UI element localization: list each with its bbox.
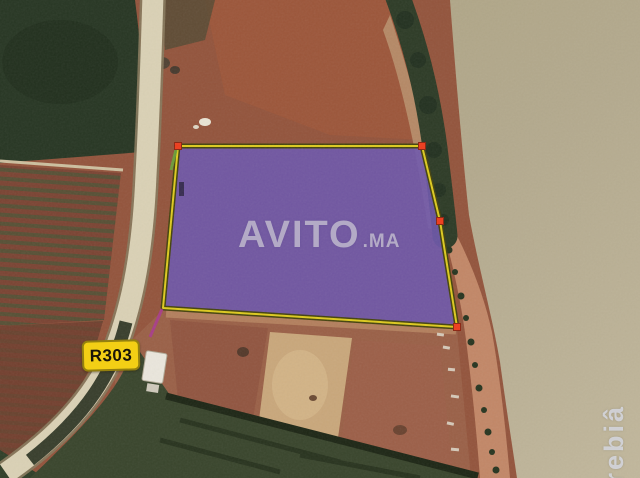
satellite-listing-image: AVITO.MA R303 rrebiâ <box>0 0 640 478</box>
river-name-watermark: rrebiâ <box>599 404 630 478</box>
avito-brand-text: AVITO <box>238 216 361 254</box>
avito-tld-text: .MA <box>363 232 401 251</box>
avito-watermark: AVITO.MA <box>238 216 400 254</box>
road-shield-r303: R303 <box>82 339 141 372</box>
